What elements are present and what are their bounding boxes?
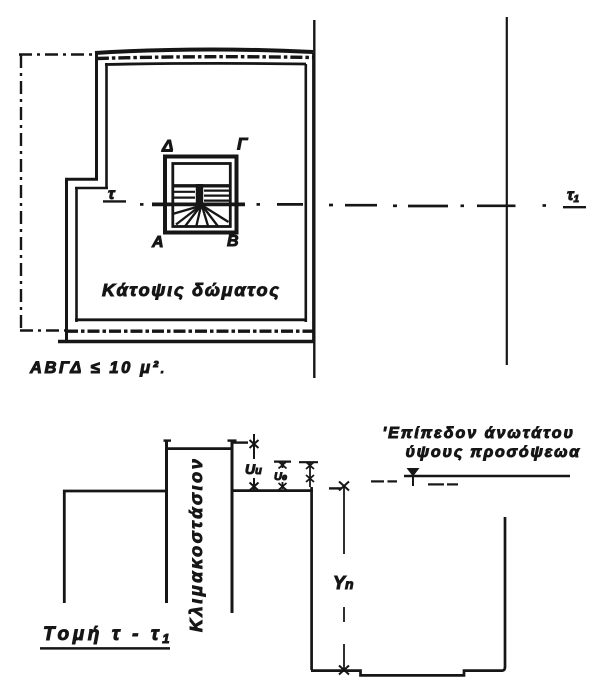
svg-text:ύψους προσόψεωα: ύψους προσόψεωα	[405, 444, 581, 461]
svg-text:ΑΒΓΔ ≤ 10 μ².: ΑΒΓΔ ≤ 10 μ².	[29, 359, 167, 377]
svg-text:Yn: Yn	[333, 573, 354, 593]
svg-text:Κλιμακοστάσιον: Κλιμακοστάσιον	[186, 457, 206, 632]
svg-text:Ue: Ue	[274, 471, 287, 483]
svg-text:'Επίπεδον άνωτάτου: 'Επίπεδον άνωτάτου	[382, 425, 575, 442]
svg-text:Δ: Δ	[161, 137, 173, 156]
svg-text:Uu: Uu	[245, 461, 262, 477]
svg-text:τ1: τ1	[567, 187, 580, 205]
svg-text:B: B	[227, 233, 239, 250]
svg-text:A: A	[151, 234, 164, 251]
svg-text:Κάτοψις δώματος: Κάτοψις δώματος	[102, 280, 281, 300]
svg-text:Γ: Γ	[237, 135, 249, 154]
svg-text:Τομή τ - τ1: Τομή τ - τ1	[43, 624, 173, 646]
